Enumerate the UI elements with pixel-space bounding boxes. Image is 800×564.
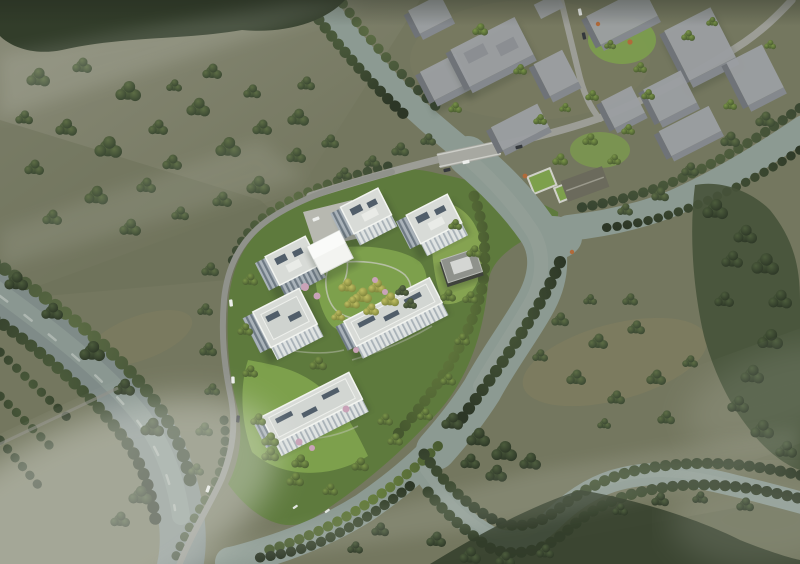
car-white	[231, 376, 235, 383]
context-lawn	[570, 132, 630, 168]
vignette-top	[0, 0, 800, 26]
accent-tree	[627, 39, 632, 44]
blossom-tree	[301, 283, 309, 291]
blossom-tree	[296, 439, 303, 446]
blossom-tree	[372, 277, 378, 283]
blossom-tree	[353, 347, 359, 353]
blossom-tree	[309, 445, 315, 451]
accent-tree	[523, 174, 528, 179]
blossom-tree	[314, 293, 321, 300]
accent-tree	[570, 250, 574, 254]
car-white	[229, 299, 233, 306]
blossom-tree	[343, 406, 350, 413]
blossom-tree	[382, 289, 388, 295]
aerial-rendering	[0, 0, 800, 564]
rendering-canvas	[0, 0, 800, 564]
